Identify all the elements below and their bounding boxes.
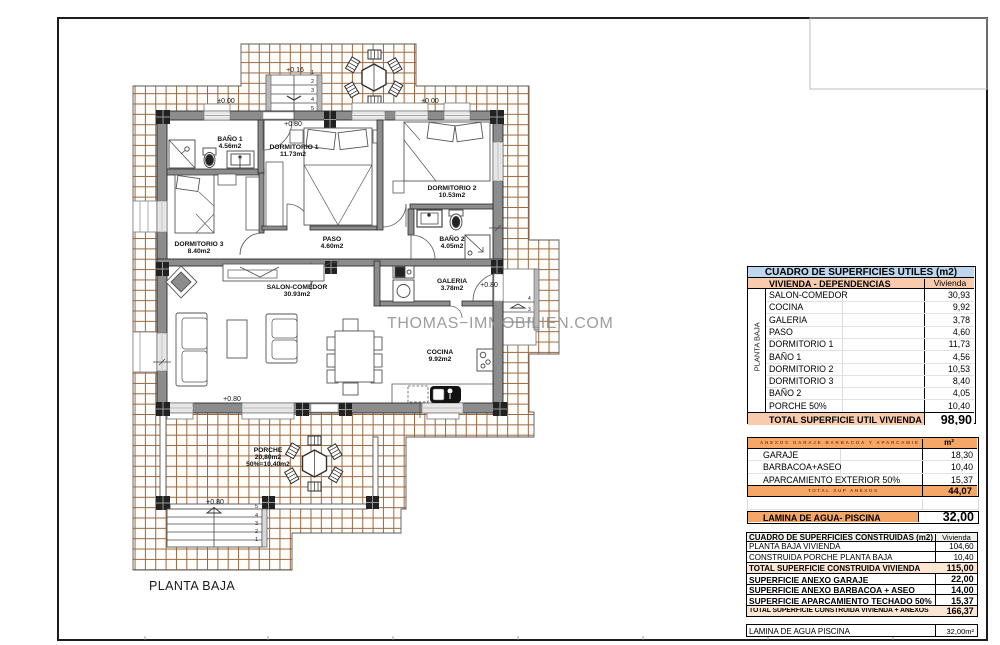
svg-text:4.60m2: 4.60m2: [321, 243, 344, 250]
svg-text:DORMITORIO 1: DORMITORIO 1: [270, 144, 319, 151]
svg-text:DORMITORIO 3: DORMITORIO 3: [175, 241, 224, 248]
svg-text:±0.00: ±0.00: [217, 98, 235, 105]
svg-text:4: 4: [255, 513, 258, 519]
svg-text:3: 3: [528, 307, 531, 313]
svg-text:30.93m2: 30.93m2: [284, 291, 311, 298]
svg-text:4.05m2: 4.05m2: [441, 243, 464, 250]
svg-text:5: 5: [255, 504, 258, 510]
svg-text:3: 3: [255, 521, 258, 527]
svg-text:+0.80: +0.80: [206, 499, 224, 506]
svg-text:PLANTA BAJA: PLANTA BAJA: [149, 579, 235, 593]
svg-text:1: 1: [311, 70, 314, 76]
svg-text:+0.80: +0.80: [284, 121, 302, 128]
svg-text:3: 3: [311, 88, 314, 94]
svg-text:50%=10,40m2: 50%=10,40m2: [246, 461, 290, 468]
svg-text:PORCHE: PORCHE: [254, 447, 283, 454]
svg-text:9.92m2: 9.92m2: [429, 356, 452, 363]
svg-text:+0.80: +0.80: [223, 396, 241, 403]
svg-text:GALERIA: GALERIA: [437, 278, 467, 285]
svg-text:BAÑO 2: BAÑO 2: [439, 234, 465, 243]
svg-text:BAÑO 1: BAÑO 1: [217, 134, 243, 143]
svg-text:3.78m2: 3.78m2: [441, 285, 464, 292]
svg-text:THOMAS−IMMOBILIEN.COM: THOMAS−IMMOBILIEN.COM: [387, 315, 613, 332]
svg-text:10.53m2: 10.53m2: [439, 192, 466, 199]
svg-text:11.73m2: 11.73m2: [280, 151, 306, 158]
svg-text:PASO: PASO: [323, 236, 341, 243]
svg-text:COCINA: COCINA: [427, 349, 454, 356]
svg-text:DORMITORIO 2: DORMITORIO 2: [428, 185, 477, 192]
svg-text:4.56m2: 4.56m2: [219, 143, 242, 150]
svg-text:2: 2: [311, 79, 314, 85]
svg-text:2: 2: [255, 529, 258, 535]
svg-text:20,80m2: 20,80m2: [255, 454, 282, 461]
svg-text:SALON-COMEDOR: SALON-COMEDOR: [267, 284, 328, 291]
svg-text:±0.00: ±0.00: [421, 98, 439, 105]
svg-text:4: 4: [528, 296, 531, 302]
svg-text:+0.16: +0.16: [286, 67, 304, 74]
svg-text:4: 4: [311, 97, 314, 103]
svg-text:8.40m2: 8.40m2: [188, 248, 211, 255]
svg-text:+0.80: +0.80: [480, 282, 498, 289]
svg-text:1: 1: [255, 537, 258, 543]
